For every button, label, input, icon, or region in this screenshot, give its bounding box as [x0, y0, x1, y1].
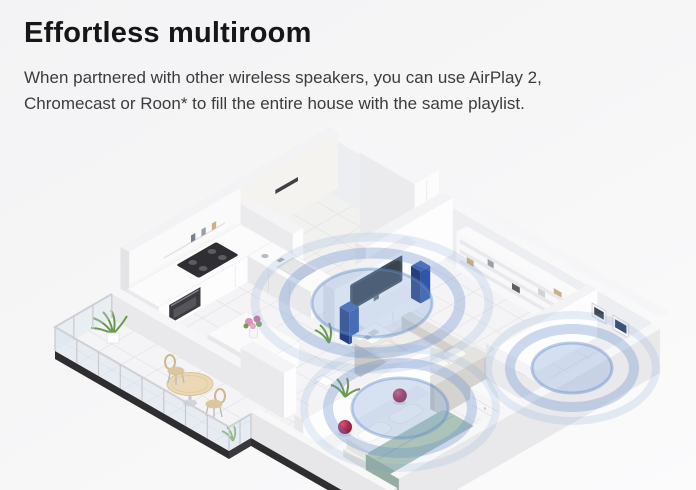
sound-waves-study: [488, 315, 656, 421]
intro-line-1: When partnered with other wireless speak…: [24, 65, 542, 91]
page-title: Effortless multiroom: [24, 17, 542, 50]
intro-paragraph: When partnered with other wireless speak…: [24, 65, 542, 117]
section-copy: Effortless multiroom When partnered with…: [24, 17, 542, 117]
multiroom-section: Effortless multiroom When partnered with…: [0, 0, 696, 490]
sound-waves-bedroom: [304, 348, 496, 468]
intro-line-2: Chromecast or Roon* to fill the entire h…: [24, 91, 542, 117]
